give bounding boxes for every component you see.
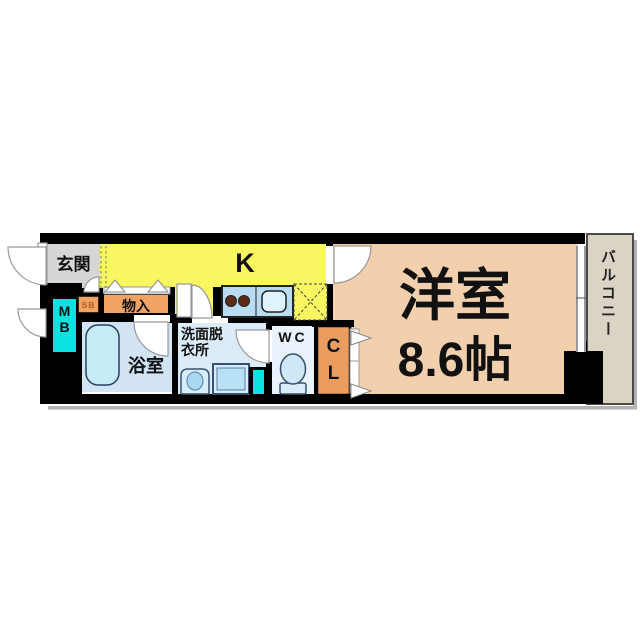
washing-machine [213, 364, 249, 394]
washing-machine-inner [217, 368, 245, 390]
toilet-icon [280, 354, 306, 394]
storage-label: 物入 [103, 296, 169, 316]
meter-box-door-arc-icon [18, 309, 46, 337]
shadow-bottom [48, 406, 637, 410]
wc-label: WC [272, 329, 314, 345]
meter-box-letter: M [52, 303, 77, 319]
entrance-door-arc-icon [8, 247, 46, 285]
fridge-space [294, 284, 327, 320]
bathroom-label: 浴室 [118, 352, 174, 378]
shadow-right [634, 240, 638, 408]
burner-icon [239, 296, 250, 307]
kitchen-counter [222, 286, 293, 317]
floor-plan: 玄関 K 物入 SB M B 浴室 洗面脱衣所 WC C L 洋室 8.6帖 バ… [0, 0, 640, 640]
washroom-door-leaf [177, 284, 191, 317]
sink-icon [262, 291, 286, 312]
kitchen-label: K [200, 248, 290, 279]
genkan-label: 玄関 [47, 250, 100, 275]
main-room-size-label: 8.6帖 [341, 320, 569, 390]
toilet-bowl [281, 354, 306, 384]
meter-box-letter: B [52, 319, 77, 335]
meter-box-label: M B [52, 303, 77, 335]
vanity-bowl [187, 372, 203, 390]
pipe-space [253, 370, 264, 394]
window-icon [576, 246, 586, 352]
wall-top [40, 233, 585, 244]
bathtub [86, 325, 119, 385]
burner-icon [226, 296, 237, 307]
washroom-label: 洗面脱衣所 [181, 326, 229, 358]
wall-corridor-stub [213, 287, 222, 318]
balcony-label: バルコニー [597, 249, 618, 339]
shoe-box-label: SB [78, 300, 99, 310]
main-room-door-opening [326, 246, 333, 284]
wall-bottom-right-block [564, 351, 603, 404]
vanity-sink [181, 369, 209, 394]
